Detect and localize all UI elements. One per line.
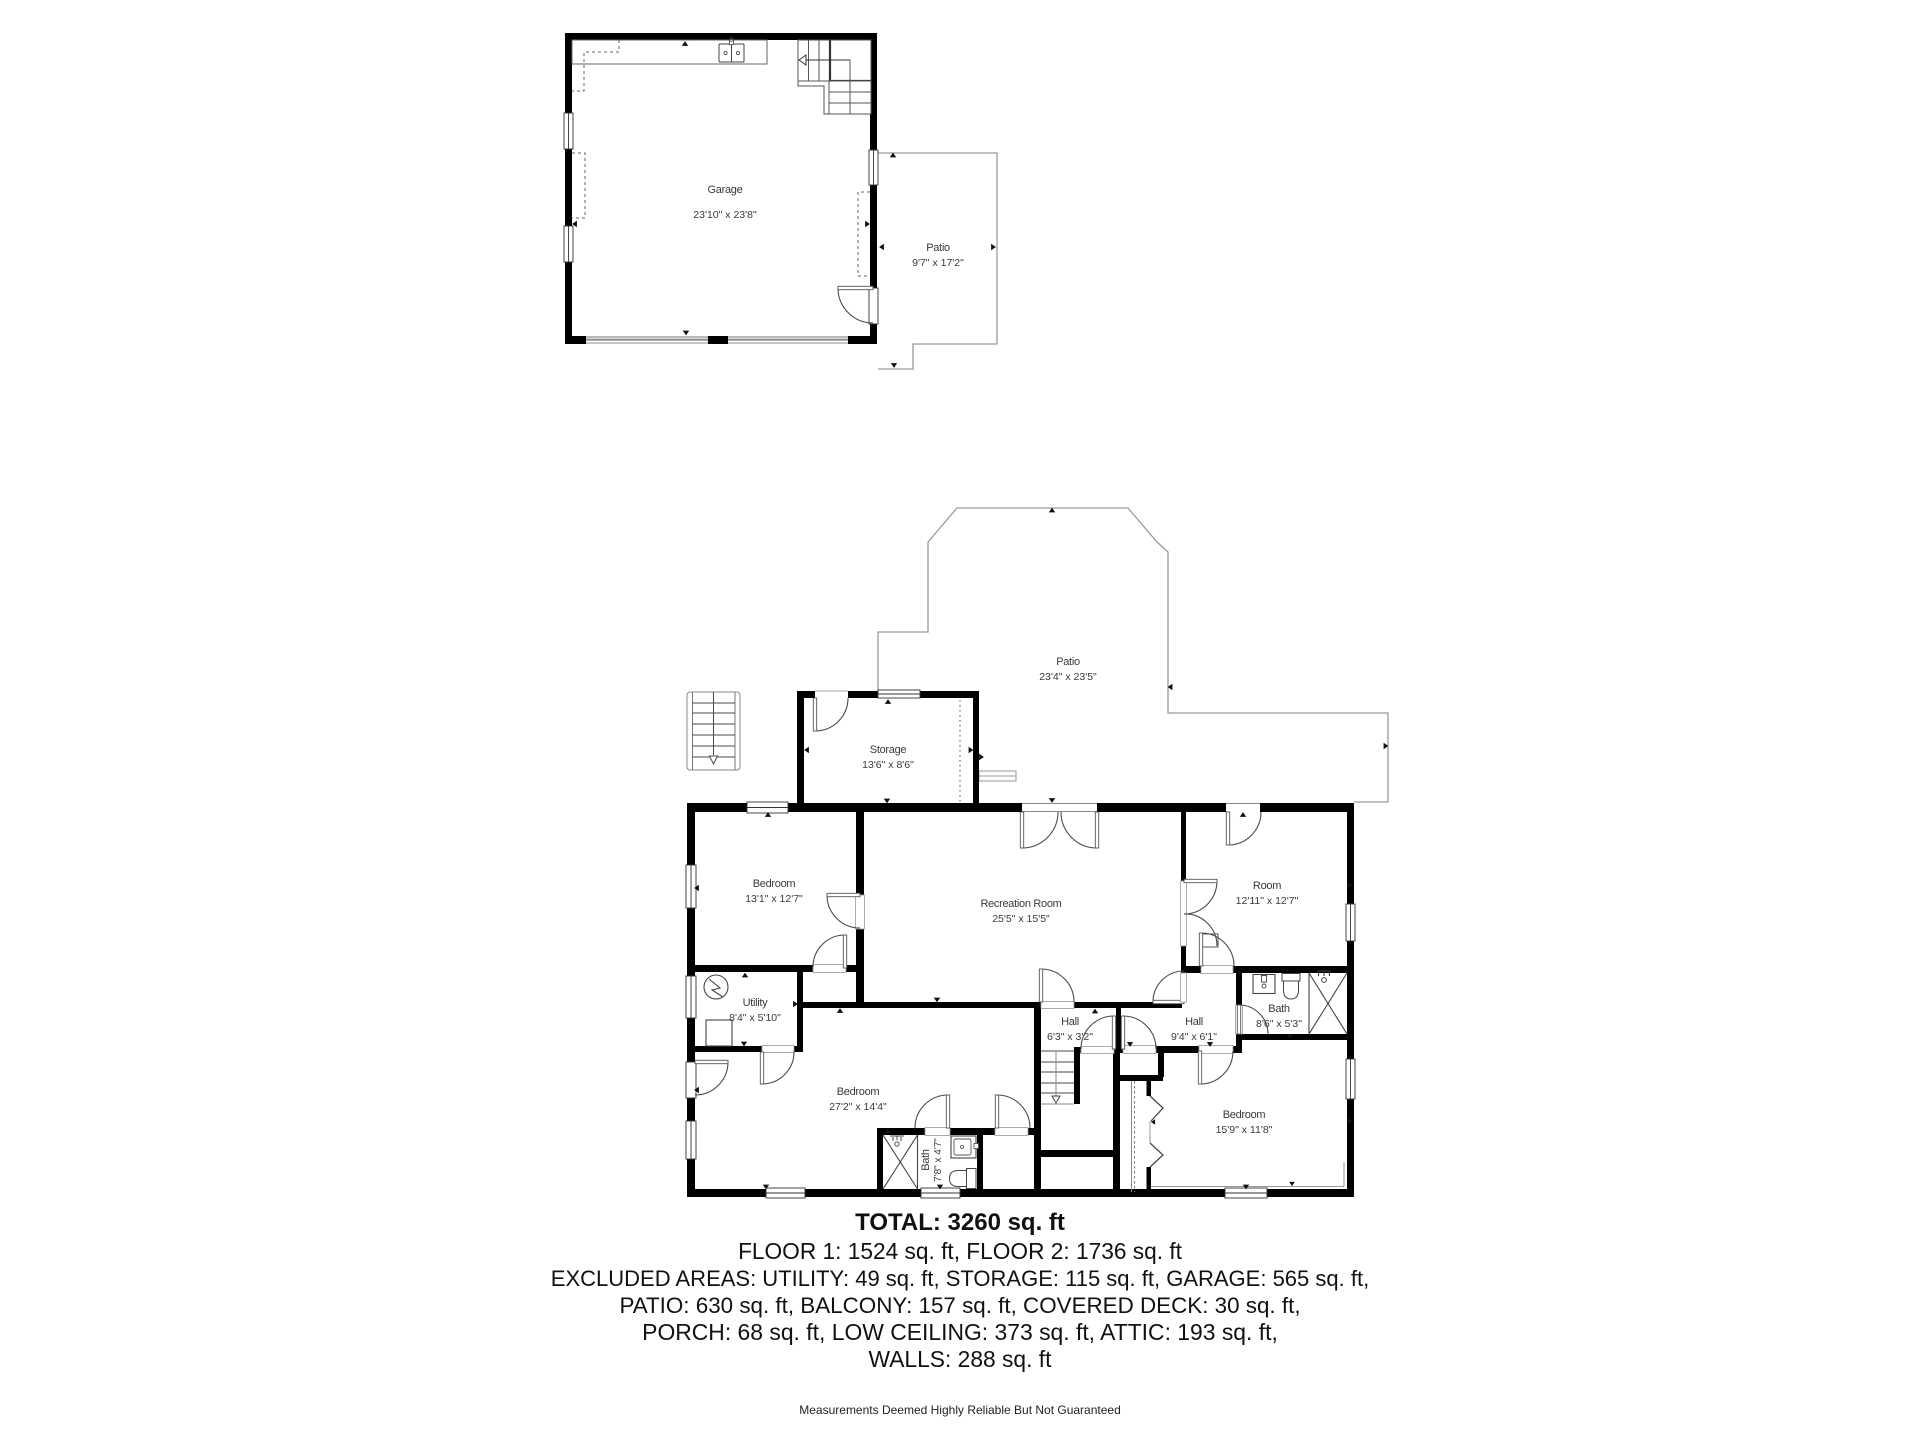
svg-text:7'8" x 4'7": 7'8" x 4'7" bbox=[933, 1138, 944, 1182]
svg-text:Room: Room bbox=[1253, 880, 1281, 892]
svg-text:Bedroom: Bedroom bbox=[1223, 1109, 1266, 1121]
svg-text:Measurements Deemed Highly Rel: Measurements Deemed Highly Reliable But … bbox=[799, 1403, 1121, 1417]
svg-text:27'2" x 14'4": 27'2" x 14'4" bbox=[829, 1101, 887, 1113]
svg-text:13'1" x 12'7": 13'1" x 12'7" bbox=[745, 893, 803, 905]
svg-text:Bedroom: Bedroom bbox=[837, 1086, 880, 1098]
svg-text:23'10" x 23'8": 23'10" x 23'8" bbox=[693, 209, 757, 221]
svg-text:EXCLUDED AREAS: UTILITY: 49 sq: EXCLUDED AREAS: UTILITY: 49 sq. ft, STOR… bbox=[551, 1266, 1369, 1291]
svg-text:25'5" x 15'5": 25'5" x 15'5" bbox=[992, 913, 1050, 925]
svg-text:8'4" x 5'10": 8'4" x 5'10" bbox=[729, 1012, 781, 1024]
svg-text:WALLS: 288 sq. ft: WALLS: 288 sq. ft bbox=[869, 1346, 1053, 1372]
svg-text:PORCH: 68 sq. ft, LOW CEILING:: PORCH: 68 sq. ft, LOW CEILING: 373 sq. f… bbox=[642, 1319, 1278, 1345]
svg-text:TOTAL: 3260 sq. ft: TOTAL: 3260 sq. ft bbox=[855, 1209, 1065, 1236]
svg-text:Patio: Patio bbox=[926, 242, 950, 254]
svg-text:Bedroom: Bedroom bbox=[753, 878, 796, 890]
svg-text:9'7" x 17'2": 9'7" x 17'2" bbox=[912, 257, 964, 269]
svg-text:Bath: Bath bbox=[1268, 1003, 1290, 1015]
svg-text:Hall: Hall bbox=[1185, 1016, 1203, 1028]
svg-text:Recreation Room: Recreation Room bbox=[980, 898, 1061, 910]
svg-text:FLOOR 1: 1524 sq. ft, FLOOR 2:: FLOOR 1: 1524 sq. ft, FLOOR 2: 1736 sq. … bbox=[738, 1238, 1183, 1264]
svg-text:Utility: Utility bbox=[743, 997, 769, 1009]
svg-text:Hall: Hall bbox=[1061, 1016, 1079, 1028]
svg-text:12'11" x 12'7": 12'11" x 12'7" bbox=[1236, 895, 1299, 907]
svg-text:15'9" x 11'8": 15'9" x 11'8" bbox=[1216, 1124, 1273, 1136]
svg-text:23'4" x 23'5": 23'4" x 23'5" bbox=[1039, 671, 1097, 683]
svg-text:9'4" x 6'1": 9'4" x 6'1" bbox=[1171, 1031, 1217, 1043]
svg-text:Garage: Garage bbox=[708, 184, 743, 196]
svg-text:PATIO: 630 sq. ft, BALCONY: 15: PATIO: 630 sq. ft, BALCONY: 157 sq. ft, … bbox=[619, 1293, 1300, 1318]
svg-text:8'6" x 5'3": 8'6" x 5'3" bbox=[1256, 1018, 1302, 1030]
svg-text:Bath: Bath bbox=[920, 1149, 932, 1171]
svg-text:Storage: Storage bbox=[870, 744, 907, 756]
svg-text:13'6" x 8'6": 13'6" x 8'6" bbox=[862, 759, 914, 771]
svg-text:Patio: Patio bbox=[1056, 656, 1080, 668]
svg-text:6'3" x 3'2": 6'3" x 3'2" bbox=[1047, 1031, 1093, 1043]
